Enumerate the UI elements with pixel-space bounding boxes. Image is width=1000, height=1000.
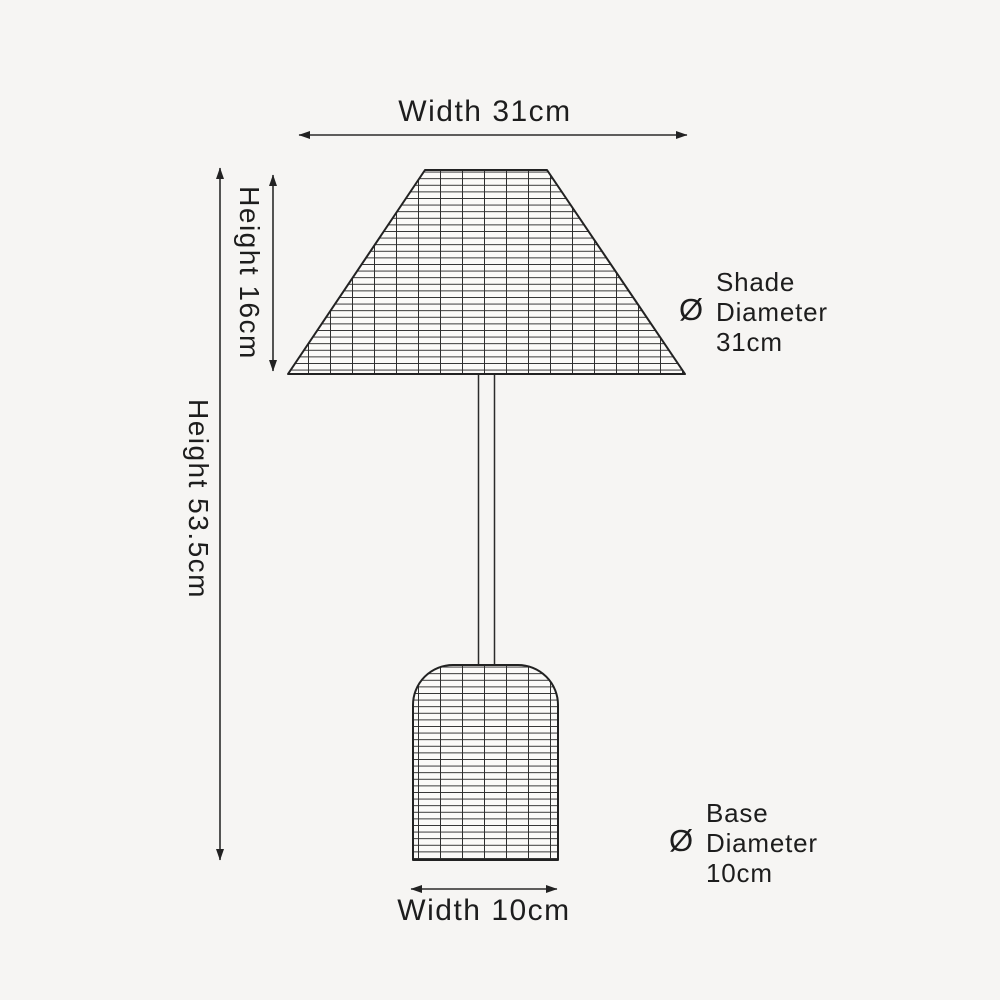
lamp-base	[413, 665, 558, 860]
shade-diameter-line2: Diameter	[716, 297, 828, 327]
overall-height-label: Height 53.5cm	[182, 379, 214, 619]
lamp-drawing	[0, 0, 1000, 1000]
base-diameter-value: 10cm	[706, 858, 818, 888]
shade-diameter-line1: Shade	[716, 267, 828, 297]
lamp-shade	[288, 170, 685, 374]
base-diameter-annotation: Ø Base Diameter 10cm	[706, 798, 818, 888]
shade-height-label: Height 16cm	[233, 163, 265, 383]
shade-width-label: Width 31cm	[285, 95, 685, 129]
diameter-symbol-icon: Ø	[669, 824, 694, 858]
lamp-dimension-diagram: Width 31cm Height 16cm Height 53.5cm Wid…	[0, 0, 1000, 1000]
shade-diameter-annotation: Ø Shade Diameter 31cm	[716, 267, 828, 357]
lamp-stem	[479, 375, 495, 666]
diameter-symbol-icon: Ø	[679, 293, 704, 327]
base-diameter-line1: Base	[706, 798, 818, 828]
base-diameter-line2: Diameter	[706, 828, 818, 858]
shade-diameter-value: 31cm	[716, 327, 828, 357]
base-width-label: Width 10cm	[334, 894, 634, 928]
